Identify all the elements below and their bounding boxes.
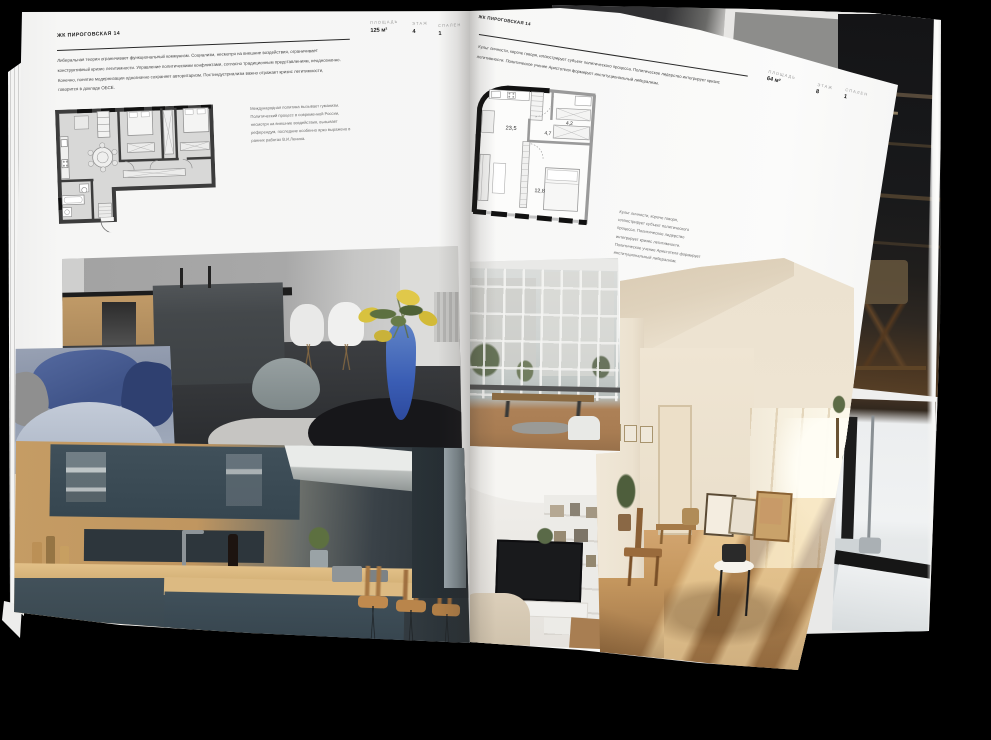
svg-text:12,8: 12,8 bbox=[534, 188, 545, 195]
svg-text:4,7: 4,7 bbox=[544, 131, 551, 137]
svg-text:23,5: 23,5 bbox=[505, 126, 516, 133]
svg-text:4,2: 4,2 bbox=[566, 121, 573, 127]
